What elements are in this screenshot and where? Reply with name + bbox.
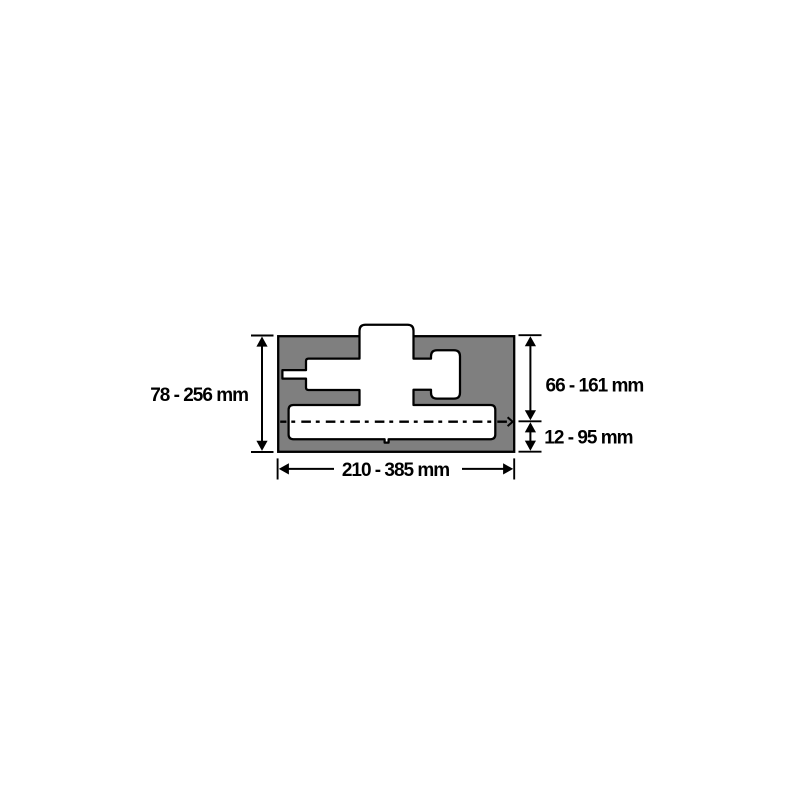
svg-text:12 - 95 mm: 12 - 95 mm — [544, 428, 632, 449]
svg-text:78 - 256 mm: 78 - 256 mm — [150, 385, 248, 406]
svg-text:210 - 385 mm: 210 - 385 mm — [342, 460, 449, 481]
svg-text:66 - 161 mm: 66 - 161 mm — [546, 376, 644, 397]
